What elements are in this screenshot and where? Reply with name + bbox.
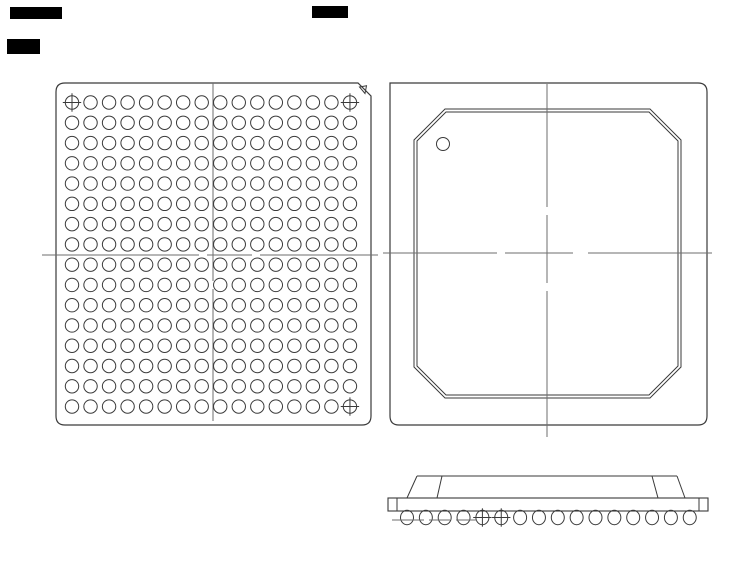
- solder-ball: [232, 157, 245, 170]
- solder-ball: [65, 157, 78, 170]
- solder-ball: [664, 510, 677, 524]
- solder-ball: [551, 510, 564, 524]
- mold-cap-slant-edge: [652, 476, 658, 498]
- solder-ball: [84, 238, 97, 251]
- solder-ball: [84, 400, 97, 413]
- solder-ball: [158, 258, 171, 271]
- solder-ball: [343, 319, 356, 332]
- solder-ball: [288, 299, 301, 312]
- solder-ball: [158, 400, 171, 413]
- solder-ball: [232, 299, 245, 312]
- solder-ball: [121, 238, 134, 251]
- solder-ball: [65, 339, 78, 352]
- solder-ball: [325, 217, 338, 230]
- solder-ball: [139, 157, 152, 170]
- solder-ball: [176, 197, 189, 210]
- solder-ball: [158, 299, 171, 312]
- solder-ball: [214, 96, 227, 109]
- solder-ball: [176, 339, 189, 352]
- solder-ball: [65, 319, 78, 332]
- solder-ball: [195, 319, 208, 332]
- solder-ball: [65, 197, 78, 210]
- solder-ball: [232, 217, 245, 230]
- solder-ball: [121, 278, 134, 291]
- solder-ball: [214, 116, 227, 129]
- substrate-bar: [388, 498, 708, 511]
- solder-ball: [121, 299, 134, 312]
- solder-ball: [176, 400, 189, 413]
- solder-ball: [65, 380, 78, 393]
- solder-ball: [325, 96, 338, 109]
- solder-ball: [325, 177, 338, 190]
- solder-ball: [176, 380, 189, 393]
- solder-ball: [232, 197, 245, 210]
- solder-ball: [84, 258, 97, 271]
- solder-ball: [102, 177, 115, 190]
- solder-ball: [195, 380, 208, 393]
- solder-ball: [214, 299, 227, 312]
- solder-ball: [158, 319, 171, 332]
- solder-ball: [176, 177, 189, 190]
- solder-ball: [121, 400, 134, 413]
- solder-ball: [102, 400, 115, 413]
- mold-cap-slant-edge: [437, 476, 442, 498]
- solder-ball: [158, 157, 171, 170]
- solder-ball: [232, 339, 245, 352]
- solder-ball: [627, 510, 640, 524]
- solder-ball: [176, 319, 189, 332]
- solder-ball: [269, 116, 282, 129]
- solder-ball: [269, 217, 282, 230]
- solder-ball: [325, 299, 338, 312]
- solder-ball: [288, 197, 301, 210]
- solder-ball: [84, 319, 97, 332]
- solder-ball: [139, 278, 152, 291]
- solder-ball: [214, 339, 227, 352]
- solder-ball: [232, 96, 245, 109]
- solder-ball: [176, 96, 189, 109]
- solder-ball: [102, 299, 115, 312]
- solder-ball: [306, 359, 319, 372]
- solder-ball: [269, 359, 282, 372]
- solder-ball: [139, 116, 152, 129]
- solder-ball: [232, 136, 245, 149]
- solder-ball: [102, 197, 115, 210]
- solder-ball: [195, 217, 208, 230]
- solder-ball: [343, 278, 356, 291]
- solder-ball: [102, 339, 115, 352]
- solder-ball: [139, 400, 152, 413]
- solder-ball: [195, 400, 208, 413]
- solder-ball: [269, 96, 282, 109]
- solder-ball: [251, 319, 264, 332]
- solder-ball: [139, 319, 152, 332]
- solder-ball: [306, 157, 319, 170]
- solder-ball: [102, 258, 115, 271]
- solder-ball: [158, 197, 171, 210]
- solder-ball: [288, 380, 301, 393]
- pin1-triangle-marker-icon: [360, 86, 367, 94]
- solder-ball: [158, 380, 171, 393]
- solder-ball: [288, 238, 301, 251]
- solder-ball: [288, 136, 301, 149]
- solder-ball: [306, 299, 319, 312]
- solder-ball: [288, 339, 301, 352]
- solder-ball: [251, 380, 264, 393]
- solder-ball: [214, 217, 227, 230]
- solder-ball: [139, 339, 152, 352]
- solder-ball: [195, 157, 208, 170]
- solder-ball: [195, 359, 208, 372]
- solder-ball: [306, 400, 319, 413]
- solder-ball: [139, 380, 152, 393]
- solder-ball: [158, 238, 171, 251]
- solder-ball: [532, 510, 545, 524]
- solder-ball: [269, 278, 282, 291]
- solder-ball: [195, 96, 208, 109]
- solder-ball: [65, 177, 78, 190]
- solder-ball: [401, 510, 414, 524]
- solder-ball: [121, 319, 134, 332]
- solder-ball: [251, 258, 264, 271]
- solder-ball: [251, 116, 264, 129]
- redaction-bar-1: [10, 7, 62, 19]
- solder-ball: [438, 510, 451, 524]
- solder-ball: [121, 380, 134, 393]
- solder-ball: [121, 258, 134, 271]
- solder-ball: [84, 299, 97, 312]
- solder-ball: [214, 258, 227, 271]
- solder-ball: [269, 136, 282, 149]
- solder-ball: [343, 217, 356, 230]
- solder-ball: [214, 238, 227, 251]
- solder-ball: [232, 278, 245, 291]
- solder-ball: [214, 380, 227, 393]
- solder-ball: [288, 96, 301, 109]
- solder-ball: [102, 136, 115, 149]
- solder-ball: [251, 339, 264, 352]
- solder-ball: [683, 510, 696, 524]
- drawing-canvas: [0, 0, 754, 576]
- solder-ball: [325, 136, 338, 149]
- solder-ball: [251, 96, 264, 109]
- solder-ball: [214, 359, 227, 372]
- solder-ball: [232, 238, 245, 251]
- solder-ball: [102, 96, 115, 109]
- solder-ball: [343, 380, 356, 393]
- pin1-dot-marker-icon: [437, 138, 450, 151]
- redaction-bar-2: [7, 39, 40, 54]
- solder-ball: [232, 258, 245, 271]
- solder-ball: [121, 177, 134, 190]
- solder-ball: [269, 197, 282, 210]
- solder-ball: [306, 116, 319, 129]
- mold-cap-slant-edge: [407, 476, 417, 498]
- solder-ball: [176, 278, 189, 291]
- solder-ball: [139, 177, 152, 190]
- solder-ball: [176, 299, 189, 312]
- solder-ball: [306, 177, 319, 190]
- solder-ball: [288, 217, 301, 230]
- solder-ball: [214, 136, 227, 149]
- solder-ball: [121, 96, 134, 109]
- solder-ball: [214, 278, 227, 291]
- solder-ball: [158, 359, 171, 372]
- solder-ball: [232, 319, 245, 332]
- solder-ball: [325, 238, 338, 251]
- solder-ball: [343, 177, 356, 190]
- solder-ball: [139, 258, 152, 271]
- solder-ball: [514, 510, 527, 524]
- solder-ball: [102, 157, 115, 170]
- solder-ball: [84, 380, 97, 393]
- solder-ball: [158, 116, 171, 129]
- top-view-outline: [390, 83, 707, 425]
- solder-ball: [269, 400, 282, 413]
- solder-ball: [158, 177, 171, 190]
- solder-ball: [251, 278, 264, 291]
- solder-ball: [121, 359, 134, 372]
- solder-ball: [84, 157, 97, 170]
- solder-ball: [232, 380, 245, 393]
- solder-ball: [102, 359, 115, 372]
- solder-ball: [195, 116, 208, 129]
- solder-ball: [176, 359, 189, 372]
- solder-ball: [251, 359, 264, 372]
- solder-ball: [325, 319, 338, 332]
- solder-ball: [84, 278, 97, 291]
- solder-ball: [306, 96, 319, 109]
- solder-ball: [176, 217, 189, 230]
- solder-ball: [269, 258, 282, 271]
- solder-ball: [121, 217, 134, 230]
- solder-ball: [65, 258, 78, 271]
- solder-ball: [325, 339, 338, 352]
- solder-ball: [65, 278, 78, 291]
- solder-ball: [325, 278, 338, 291]
- solder-ball: [84, 359, 97, 372]
- solder-ball: [139, 136, 152, 149]
- solder-ball: [121, 116, 134, 129]
- solder-ball: [102, 238, 115, 251]
- solder-ball: [195, 136, 208, 149]
- solder-ball: [269, 177, 282, 190]
- solder-ball: [269, 380, 282, 393]
- solder-ball: [325, 400, 338, 413]
- solder-ball: [269, 299, 282, 312]
- solder-ball: [251, 400, 264, 413]
- solder-ball: [65, 238, 78, 251]
- solder-ball: [158, 278, 171, 291]
- solder-ball: [251, 177, 264, 190]
- solder-ball: [343, 116, 356, 129]
- solder-ball: [214, 400, 227, 413]
- solder-ball: [195, 177, 208, 190]
- solder-ball: [84, 96, 97, 109]
- solder-ball: [121, 157, 134, 170]
- solder-ball: [306, 339, 319, 352]
- solder-ball: [251, 197, 264, 210]
- solder-ball: [419, 510, 432, 524]
- solder-ball: [158, 136, 171, 149]
- solder-ball: [269, 339, 282, 352]
- solder-ball: [343, 299, 356, 312]
- solder-ball: [306, 136, 319, 149]
- solder-ball: [608, 510, 621, 524]
- solder-ball: [84, 177, 97, 190]
- solder-ball: [288, 359, 301, 372]
- solder-ball: [325, 197, 338, 210]
- solder-ball: [139, 238, 152, 251]
- solder-ball: [84, 339, 97, 352]
- solder-ball: [306, 278, 319, 291]
- solder-ball: [176, 238, 189, 251]
- solder-ball: [65, 299, 78, 312]
- mold-cap-slant-edge: [677, 476, 685, 498]
- solder-ball: [325, 380, 338, 393]
- solder-ball: [325, 258, 338, 271]
- solder-ball: [325, 157, 338, 170]
- solder-ball: [343, 136, 356, 149]
- solder-ball: [84, 116, 97, 129]
- solder-ball: [121, 197, 134, 210]
- solder-ball: [232, 177, 245, 190]
- solder-ball: [84, 197, 97, 210]
- package-top-view: [390, 83, 707, 425]
- solder-ball: [232, 116, 245, 129]
- solder-ball: [570, 510, 583, 524]
- solder-ball: [214, 177, 227, 190]
- solder-ball: [65, 136, 78, 149]
- solder-ball: [214, 319, 227, 332]
- solder-ball: [65, 116, 78, 129]
- solder-ball: [288, 400, 301, 413]
- solder-ball: [325, 116, 338, 129]
- solder-ball: [288, 258, 301, 271]
- solder-ball: [195, 258, 208, 271]
- solder-ball: [269, 319, 282, 332]
- solder-ball: [251, 299, 264, 312]
- solder-ball: [176, 136, 189, 149]
- solder-ball: [214, 157, 227, 170]
- solder-ball: [343, 238, 356, 251]
- solder-ball: [251, 217, 264, 230]
- redaction-bar-3: [312, 6, 348, 18]
- solder-ball: [102, 319, 115, 332]
- solder-ball: [288, 116, 301, 129]
- solder-ball: [102, 278, 115, 291]
- solder-ball: [306, 380, 319, 393]
- solder-ball: [176, 258, 189, 271]
- solder-ball: [195, 339, 208, 352]
- solder-ball: [343, 258, 356, 271]
- solder-ball: [65, 400, 78, 413]
- solder-ball: [102, 116, 115, 129]
- solder-ball: [195, 197, 208, 210]
- solder-ball: [139, 217, 152, 230]
- solder-ball: [65, 217, 78, 230]
- solder-ball: [269, 238, 282, 251]
- solder-ball: [343, 339, 356, 352]
- solder-ball: [102, 380, 115, 393]
- solder-ball: [343, 197, 356, 210]
- package-side-view: [388, 476, 708, 527]
- solder-ball: [158, 339, 171, 352]
- solder-ball: [65, 359, 78, 372]
- solder-ball: [195, 299, 208, 312]
- top-view-centerlines: [383, 84, 712, 437]
- solder-ball: [306, 217, 319, 230]
- solder-ball: [343, 157, 356, 170]
- solder-ball: [306, 238, 319, 251]
- solder-ball: [176, 116, 189, 129]
- solder-ball: [232, 359, 245, 372]
- solder-ball: [139, 299, 152, 312]
- solder-ball: [589, 510, 602, 524]
- solder-ball: [251, 136, 264, 149]
- solder-ball: [251, 157, 264, 170]
- solder-ball: [325, 359, 338, 372]
- solder-ball: [139, 197, 152, 210]
- solder-ball: [288, 278, 301, 291]
- solder-ball: [232, 400, 245, 413]
- solder-ball: [269, 157, 282, 170]
- solder-ball: [158, 217, 171, 230]
- solder-ball: [176, 157, 189, 170]
- solder-ball: [195, 278, 208, 291]
- solder-ball: [288, 319, 301, 332]
- solder-ball: [121, 136, 134, 149]
- solder-ball: [306, 258, 319, 271]
- solder-ball: [139, 96, 152, 109]
- solder-ball: [288, 157, 301, 170]
- solder-ball: [646, 510, 659, 524]
- solder-ball: [306, 197, 319, 210]
- solder-ball: [251, 238, 264, 251]
- solder-ball: [195, 238, 208, 251]
- solder-ball: [139, 359, 152, 372]
- solder-ball: [158, 96, 171, 109]
- solder-ball: [84, 217, 97, 230]
- bottom-view-centerlines: [42, 83, 378, 421]
- solder-ball: [306, 319, 319, 332]
- solder-ball: [84, 136, 97, 149]
- solder-ball: [214, 197, 227, 210]
- solder-ball: [343, 359, 356, 372]
- bga-package-drawing: [0, 0, 754, 576]
- solder-ball: [121, 339, 134, 352]
- solder-ball: [288, 177, 301, 190]
- solder-ball: [457, 510, 470, 524]
- solder-ball: [102, 217, 115, 230]
